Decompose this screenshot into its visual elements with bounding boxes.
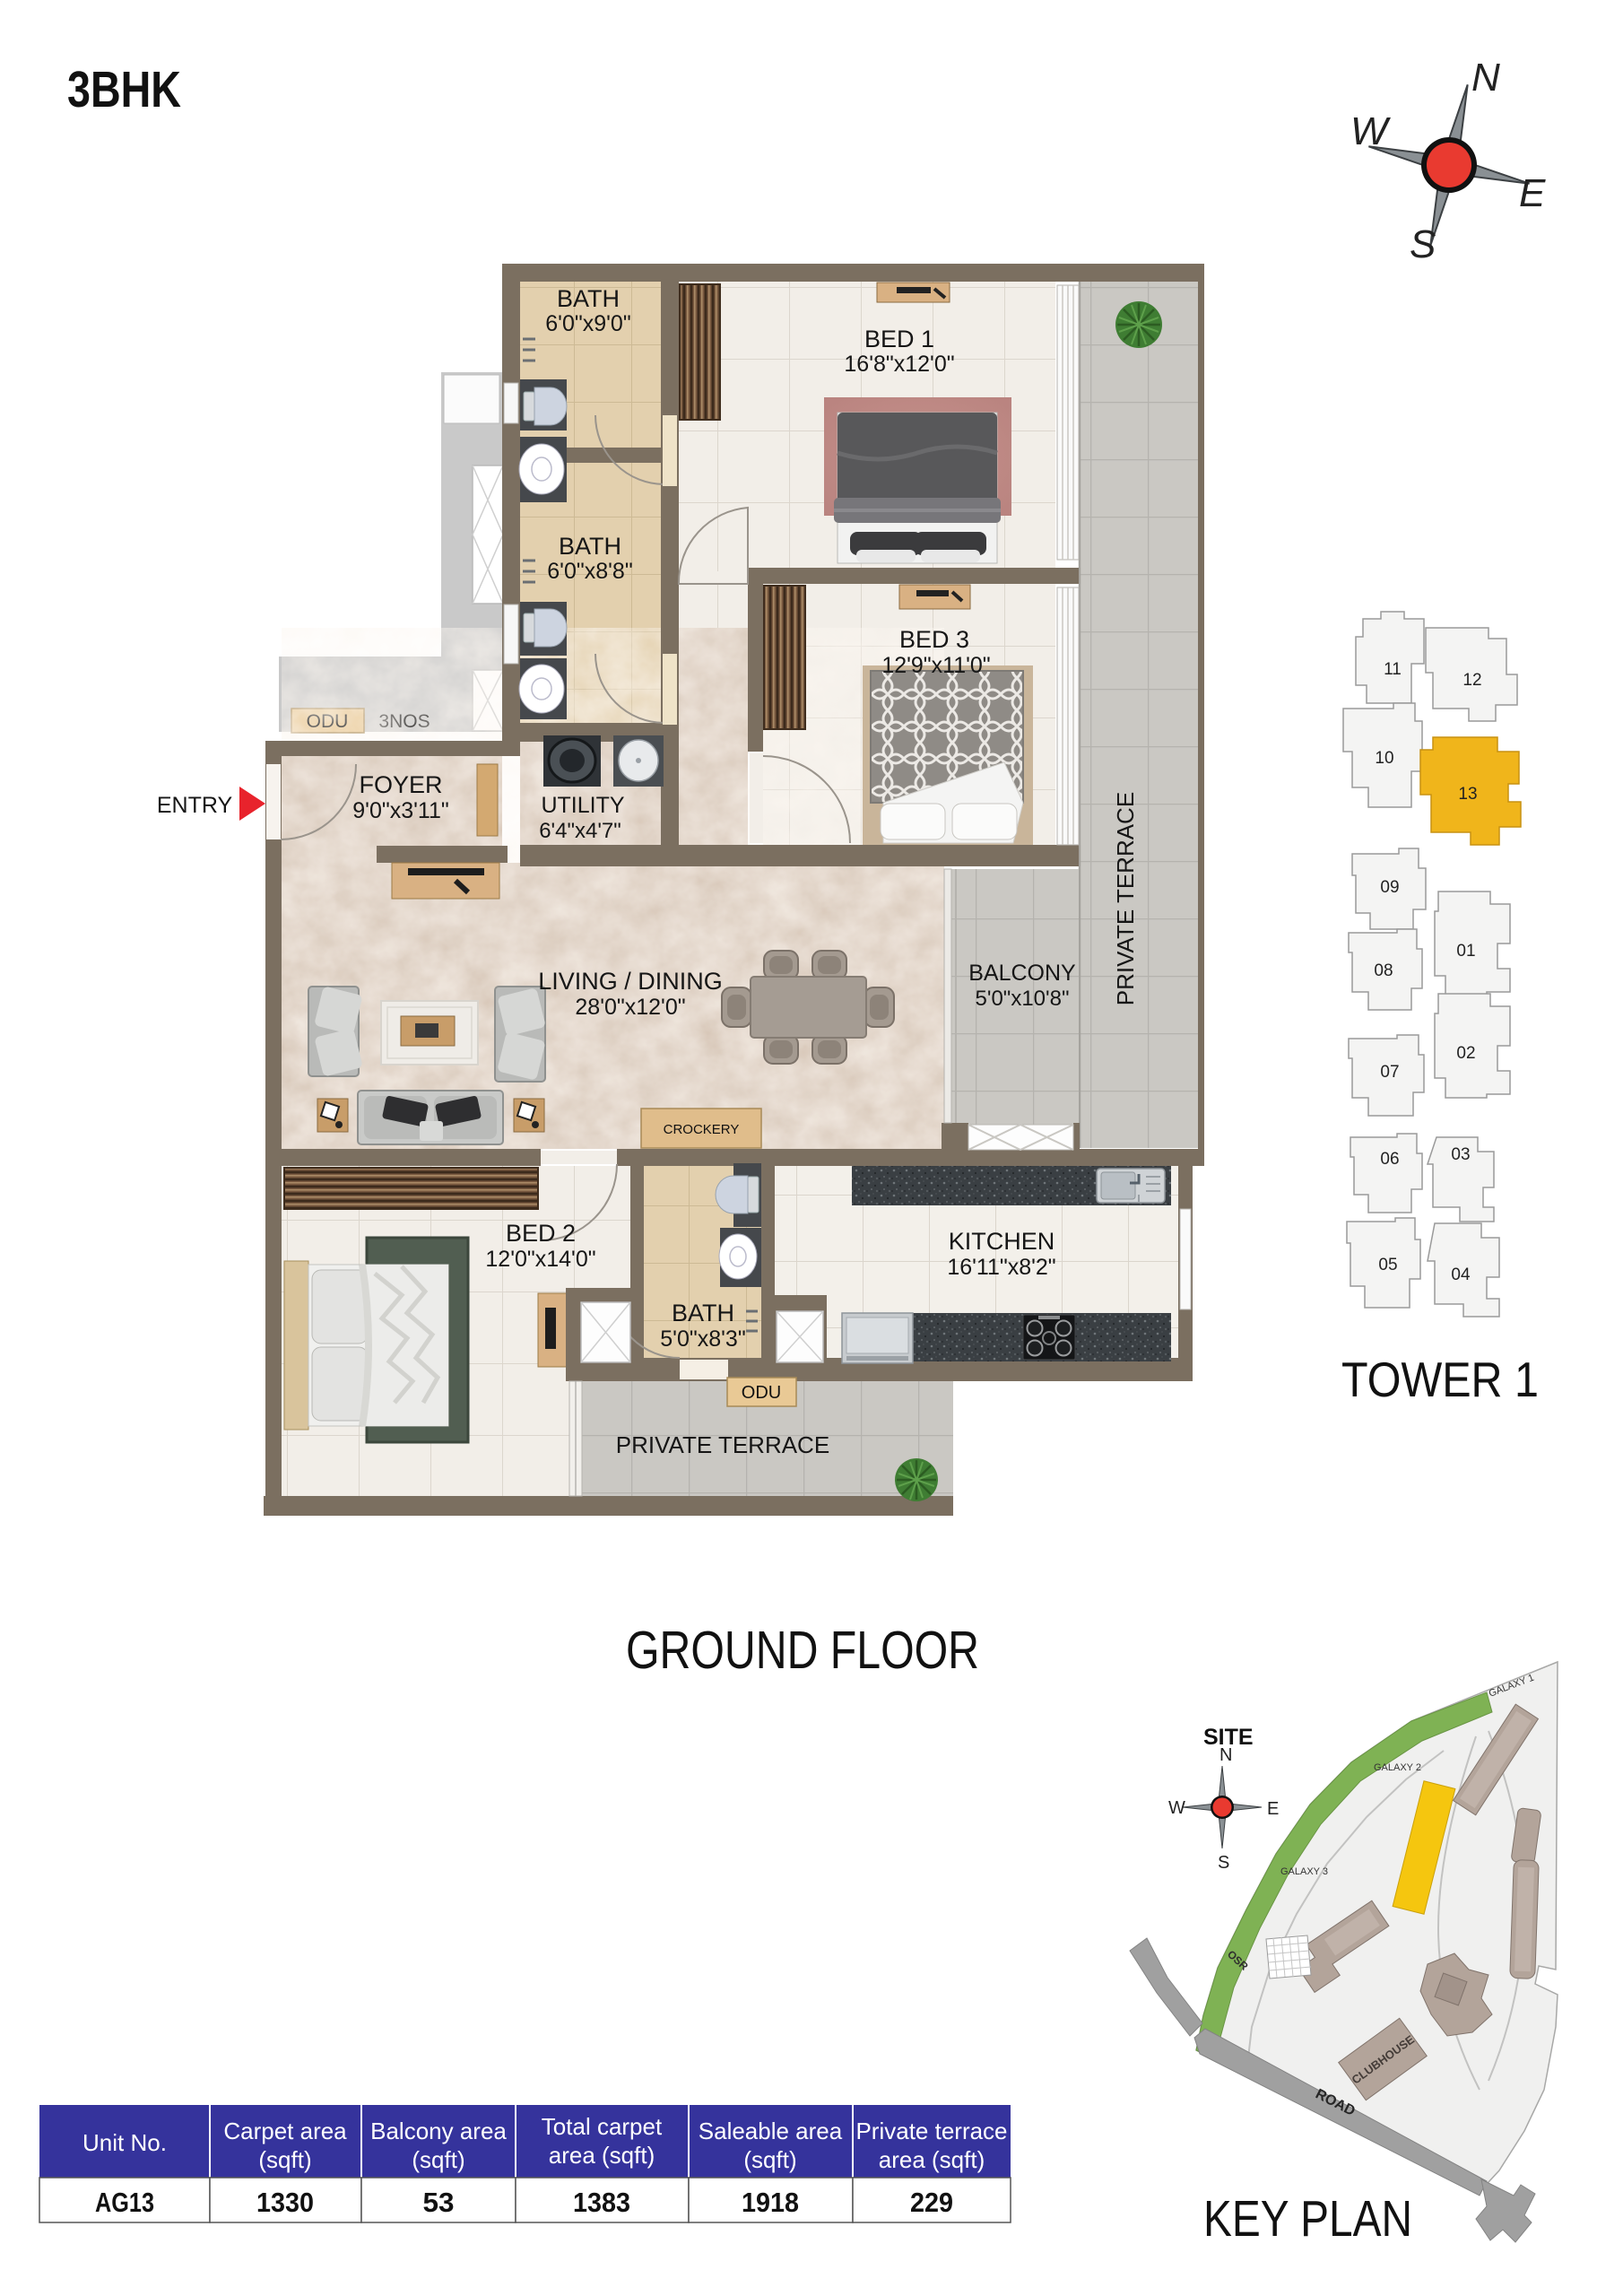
svg-text:5'0"x10'8": 5'0"x10'8" [976, 987, 1070, 1011]
svg-text:S: S [1410, 222, 1436, 266]
svg-text:N: N [1219, 1745, 1232, 1765]
svg-text:LIVING / DINING: LIVING / DINING [538, 968, 723, 995]
svg-text:(sqft): (sqft) [412, 2146, 464, 2173]
svg-text:16'11"x8'2": 16'11"x8'2" [947, 1255, 1055, 1280]
svg-text:TOWER 1: TOWER 1 [1341, 1352, 1539, 1407]
svg-text:03: 03 [1451, 1145, 1470, 1164]
svg-text:9'0"x3'11": 9'0"x3'11" [352, 798, 448, 823]
svg-text:BED 2: BED 2 [506, 1220, 576, 1247]
svg-text:5'0"x8'3": 5'0"x8'3" [660, 1326, 745, 1352]
svg-text:ODU: ODU [307, 711, 349, 732]
svg-text:07: 07 [1380, 1063, 1399, 1082]
svg-text:08: 08 [1374, 961, 1393, 980]
svg-text:6'0"x9'0": 6'0"x9'0" [545, 311, 630, 336]
svg-text:1330: 1330 [256, 2187, 314, 2218]
svg-text:E: E [1267, 1799, 1279, 1819]
svg-text:53: 53 [423, 2187, 455, 2218]
svg-text:6'0"x8'8": 6'0"x8'8" [547, 559, 632, 584]
svg-text:W: W [1168, 1798, 1185, 1818]
svg-text:16'8"x12'0": 16'8"x12'0" [844, 352, 954, 377]
svg-text:AG13: AG13 [95, 2187, 154, 2218]
svg-text:W: W [1350, 109, 1391, 153]
svg-text:BATH: BATH [557, 285, 620, 312]
svg-text:(sqft): (sqft) [258, 2146, 311, 2173]
svg-text:3BHK: 3BHK [67, 61, 181, 118]
svg-text:1383: 1383 [573, 2187, 630, 2218]
svg-text:12'9"x11'0": 12'9"x11'0" [881, 653, 990, 678]
svg-text:Total carpet: Total carpet [542, 2113, 663, 2140]
svg-text:Balcony area: Balcony area [370, 2118, 507, 2144]
svg-text:GALAXY 2: GALAXY 2 [1374, 1762, 1421, 1773]
svg-text:Saleable area: Saleable area [699, 2118, 843, 2144]
svg-text:ODU: ODU [742, 1383, 781, 1403]
svg-text:BATH: BATH [559, 533, 621, 560]
svg-text:S: S [1218, 1853, 1229, 1873]
svg-text:Carpet area: Carpet area [223, 2118, 347, 2144]
svg-text:GALAXY 3: GALAXY 3 [1280, 1866, 1328, 1877]
svg-text:Unit No.: Unit No. [82, 2129, 167, 2156]
svg-text:3NOS: 3NOS [378, 711, 430, 732]
svg-text:04: 04 [1451, 1265, 1471, 1284]
svg-text:BED 3: BED 3 [899, 626, 969, 653]
svg-text:PRIVATE TERRACE: PRIVATE TERRACE [616, 1431, 829, 1458]
svg-text:PRIVATE TERRACE: PRIVATE TERRACE [1112, 792, 1139, 1005]
svg-text:N: N [1471, 56, 1500, 100]
svg-text:CROCKERY: CROCKERY [664, 1122, 740, 1137]
svg-text:UTILITY: UTILITY [541, 793, 624, 818]
svg-text:BALCONY: BALCONY [968, 961, 1076, 986]
svg-text:1918: 1918 [742, 2187, 799, 2218]
svg-text:area (sqft): area (sqft) [549, 2142, 655, 2169]
svg-text:BATH: BATH [672, 1300, 734, 1326]
svg-text:12: 12 [1462, 671, 1481, 690]
svg-text:12'0"x14'0": 12'0"x14'0" [485, 1247, 595, 1272]
svg-text:06: 06 [1380, 1150, 1399, 1169]
svg-text:KEY PLAN: KEY PLAN [1203, 2190, 1412, 2248]
svg-text:10: 10 [1375, 749, 1393, 768]
svg-text:E: E [1519, 171, 1546, 215]
svg-text:BED 1: BED 1 [864, 326, 934, 352]
svg-text:(sqft): (sqft) [743, 2146, 796, 2173]
svg-text:KITCHEN: KITCHEN [949, 1228, 1055, 1255]
svg-text:05: 05 [1378, 1256, 1397, 1274]
svg-text:02: 02 [1456, 1044, 1475, 1063]
svg-text:01: 01 [1456, 942, 1475, 961]
svg-text:Private terrace: Private terrace [855, 2118, 1007, 2144]
svg-text:28'0"x12'0": 28'0"x12'0" [575, 995, 685, 1020]
svg-text:6'4"x4'7": 6'4"x4'7" [539, 819, 621, 843]
svg-text:FOYER: FOYER [359, 771, 442, 798]
svg-text:11: 11 [1384, 660, 1402, 679]
svg-text:229: 229 [910, 2187, 953, 2218]
svg-text:ENTRY: ENTRY [157, 793, 233, 818]
svg-text:13: 13 [1458, 785, 1477, 804]
svg-text:area (sqft): area (sqft) [879, 2146, 985, 2173]
svg-text:GROUND FLOOR: GROUND FLOOR [626, 1621, 979, 1680]
svg-text:09: 09 [1380, 878, 1399, 897]
